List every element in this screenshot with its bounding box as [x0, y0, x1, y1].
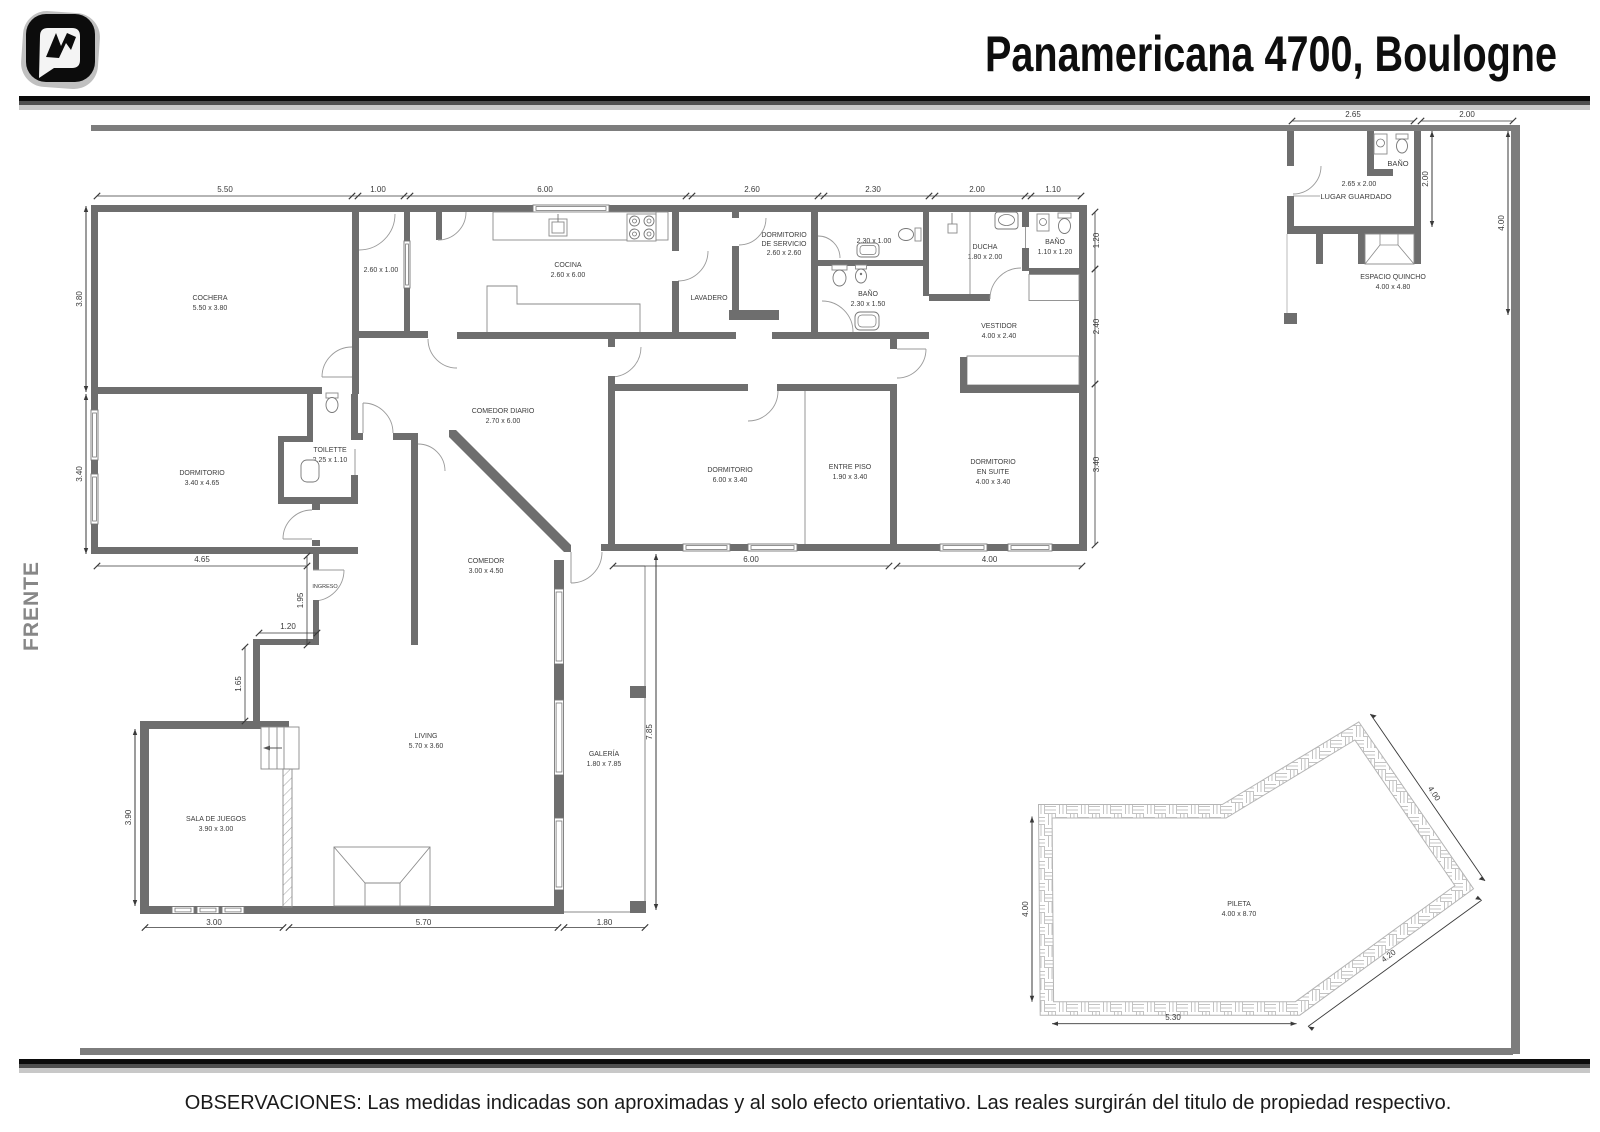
svg-text:4.00: 4.00 [1021, 901, 1030, 917]
svg-text:ENTRE PISO: ENTRE PISO [829, 464, 872, 471]
svg-text:LUGAR GUARDADO: LUGAR GUARDADO [1320, 192, 1391, 201]
svg-text:2.30: 2.30 [865, 185, 881, 194]
svg-text:6.00 x 3.40: 6.00 x 3.40 [713, 477, 748, 484]
svg-text:3.00 x 4.50: 3.00 x 4.50 [469, 568, 504, 575]
svg-text:1.65: 1.65 [234, 676, 243, 692]
svg-text:3.80: 3.80 [75, 291, 84, 307]
svg-text:1.20: 1.20 [1092, 232, 1101, 248]
svg-text:2.60 x 6.00: 2.60 x 6.00 [551, 272, 586, 279]
svg-text:BAÑO: BAÑO [1045, 237, 1065, 246]
svg-text:2.00: 2.00 [969, 185, 985, 194]
svg-text:2.40: 2.40 [1092, 318, 1101, 334]
svg-text:EN SUITE: EN SUITE [977, 469, 1010, 476]
svg-text:INGRESO: INGRESO [312, 584, 338, 590]
svg-text:2.30 x 1.50: 2.30 x 1.50 [851, 301, 886, 308]
svg-text:DORMITORIO: DORMITORIO [179, 470, 225, 477]
svg-text:7.85: 7.85 [645, 724, 654, 740]
svg-text:COMEDOR DIARIO: COMEDOR DIARIO [472, 408, 535, 415]
svg-text:2.60: 2.60 [744, 185, 760, 194]
svg-text:BAÑO: BAÑO [1387, 159, 1408, 168]
svg-text:Panamericana 4700, Boulogne: Panamericana 4700, Boulogne [985, 26, 1557, 82]
svg-text:3.40: 3.40 [75, 466, 84, 482]
svg-text:2.65: 2.65 [1345, 110, 1361, 119]
svg-text:DORMITORIO: DORMITORIO [970, 459, 1016, 466]
svg-text:GALERÍA: GALERÍA [589, 749, 620, 758]
svg-text:LAVADERO: LAVADERO [690, 295, 728, 302]
svg-text:5.30: 5.30 [1165, 1013, 1181, 1022]
svg-text:1.95: 1.95 [296, 592, 305, 608]
svg-text:4.00: 4.00 [982, 555, 998, 564]
svg-text:4.00 x 2.40: 4.00 x 2.40 [982, 333, 1017, 340]
svg-text:2.60 x 1.00: 2.60 x 1.00 [364, 267, 399, 274]
svg-text:2.60 x 2.60: 2.60 x 2.60 [767, 250, 802, 257]
svg-text:4.65: 4.65 [194, 555, 210, 564]
svg-text:1.90 x 3.40: 1.90 x 3.40 [833, 474, 868, 481]
svg-text:1.80 x 2.00: 1.80 x 2.00 [968, 254, 1003, 261]
svg-text:3.00: 3.00 [206, 918, 222, 927]
svg-text:3.90: 3.90 [124, 809, 133, 825]
svg-text:SALA DE JUEGOS: SALA DE JUEGOS [186, 816, 246, 823]
svg-text:OBSERVACIONES: Las medidas ind: OBSERVACIONES: Las medidas indicadas son… [185, 1092, 1452, 1114]
svg-text:1.00: 1.00 [370, 185, 386, 194]
svg-text:PILETA: PILETA [1227, 901, 1251, 908]
svg-text:DORMITORIO: DORMITORIO [761, 232, 807, 239]
svg-text:1.80 x 7.85: 1.80 x 7.85 [587, 761, 622, 768]
svg-text:4.00 x 4.80: 4.00 x 4.80 [1376, 284, 1411, 291]
svg-text:COCHERA: COCHERA [192, 295, 227, 302]
svg-text:5.50 x 3.80: 5.50 x 3.80 [193, 305, 228, 312]
svg-text:2.00: 2.00 [1421, 171, 1430, 187]
svg-text:5.50: 5.50 [217, 185, 233, 194]
svg-text:2.70 x 6.00: 2.70 x 6.00 [486, 418, 521, 425]
svg-text:1.10: 1.10 [1045, 185, 1061, 194]
svg-text:LIVING: LIVING [415, 733, 438, 740]
svg-text:2.00: 2.00 [1459, 110, 1475, 119]
svg-text:3.40: 3.40 [1092, 456, 1101, 472]
svg-text:FRENTE: FRENTE [20, 561, 43, 651]
svg-text:DE SERVICIO: DE SERVICIO [762, 241, 808, 248]
svg-text:DORMITORIO: DORMITORIO [707, 467, 753, 474]
svg-text:COCINA: COCINA [554, 262, 582, 269]
svg-text:6.00: 6.00 [743, 555, 759, 564]
svg-text:5.70: 5.70 [416, 918, 432, 927]
svg-text:VESTIDOR: VESTIDOR [981, 323, 1017, 330]
svg-text:5.70 x 3.60: 5.70 x 3.60 [409, 743, 444, 750]
svg-text:1.10 x 1.20: 1.10 x 1.20 [1038, 249, 1073, 256]
svg-text:ESPACIO QUINCHO: ESPACIO QUINCHO [1360, 274, 1426, 281]
svg-text:4.00 x 8.70: 4.00 x 8.70 [1222, 911, 1257, 918]
svg-text:3.40 x 4.65: 3.40 x 4.65 [185, 480, 220, 487]
svg-text:4.00: 4.00 [1497, 215, 1506, 231]
svg-text:1.80: 1.80 [597, 918, 613, 927]
svg-text:DUCHA: DUCHA [973, 244, 998, 251]
svg-text:4.00 x 3.40: 4.00 x 3.40 [976, 479, 1011, 486]
svg-text:1.20: 1.20 [280, 622, 296, 631]
svg-text:BAÑO: BAÑO [858, 289, 878, 298]
svg-text:2.65 x 2.00: 2.65 x 2.00 [1342, 181, 1377, 188]
svg-text:TOILETTE: TOILETTE [313, 447, 347, 454]
svg-text:6.00: 6.00 [537, 185, 553, 194]
svg-text:3.90 x 3.00: 3.90 x 3.00 [199, 826, 234, 833]
svg-text:COMEDOR: COMEDOR [468, 558, 505, 565]
